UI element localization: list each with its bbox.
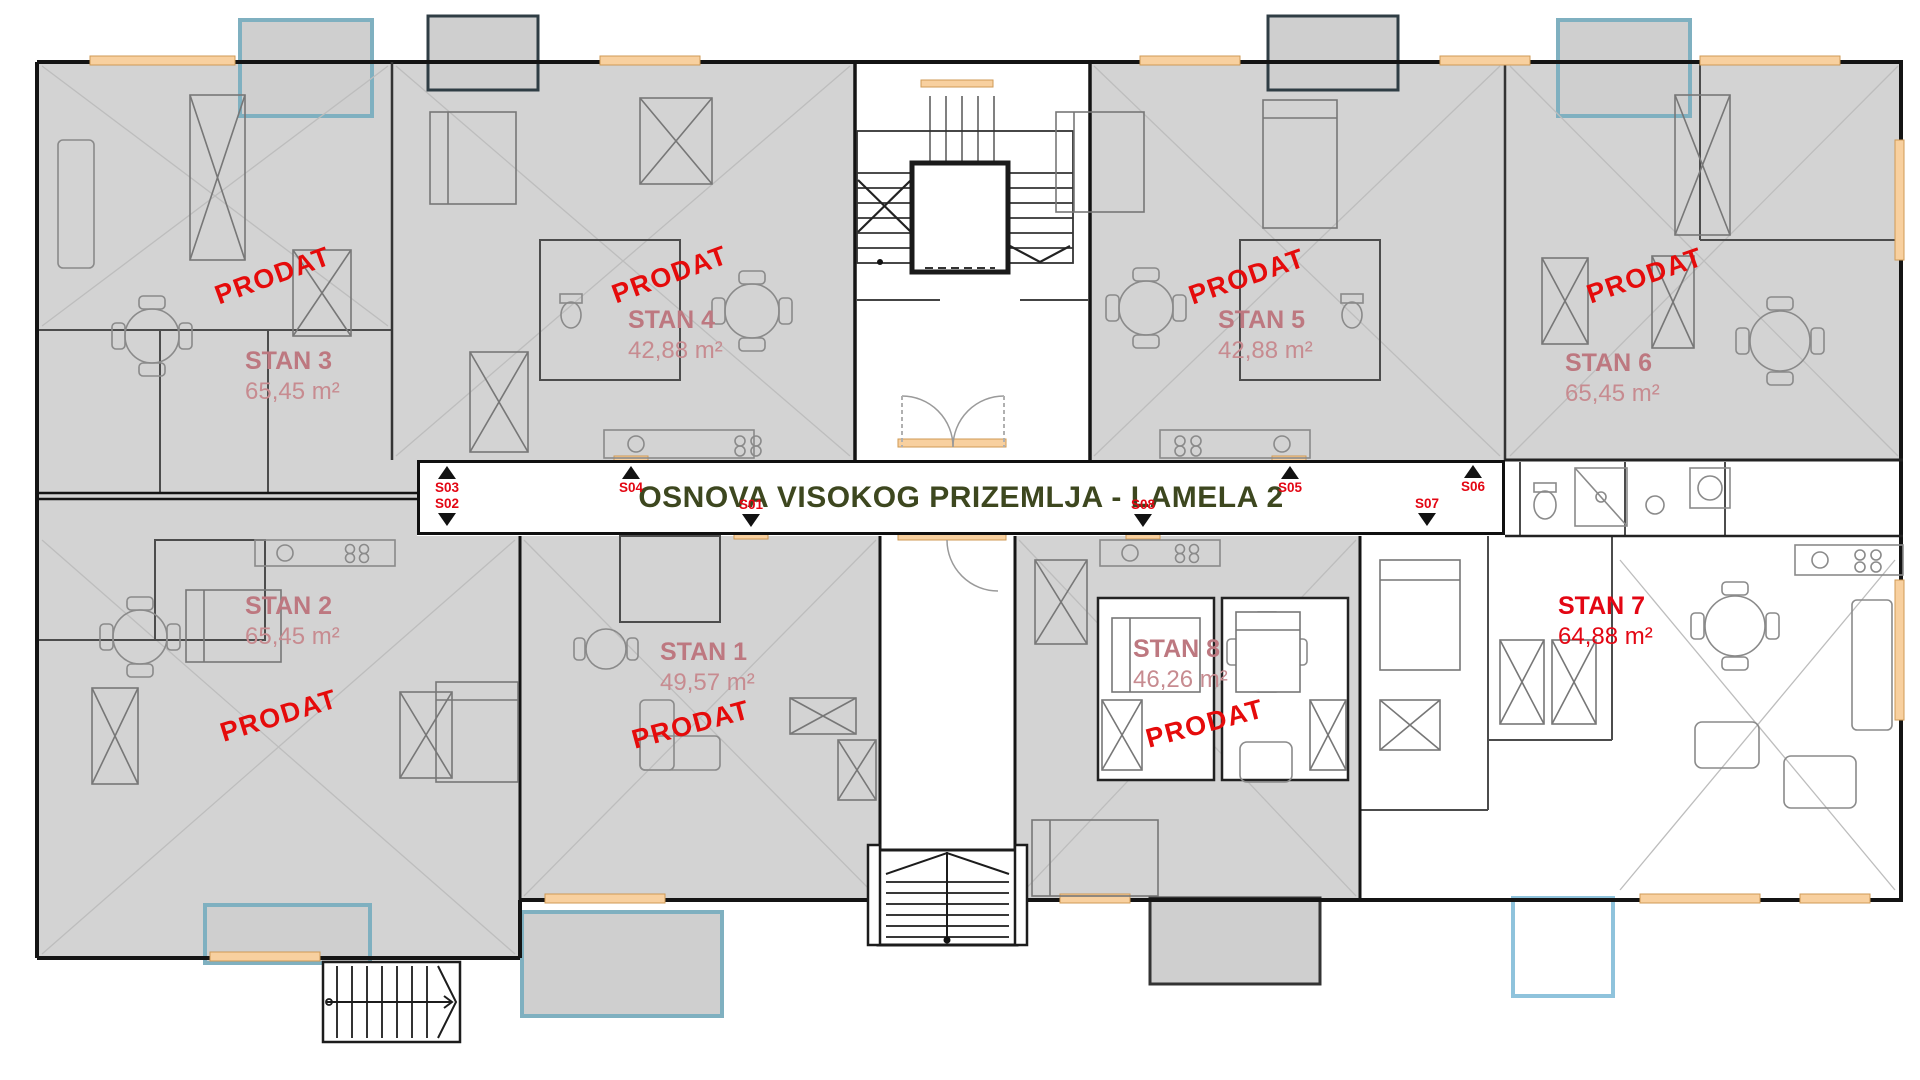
- exterior-stairs: [323, 962, 460, 1042]
- title-band: OSNOVA VISOKOG PRIZEMLJA - LAMELA 2: [417, 460, 1505, 535]
- apartment-stan-5[interactable]: STAN 5 42,88 m²: [1218, 306, 1313, 365]
- entrance-marker-s06: S06: [1461, 465, 1485, 494]
- terrace-stan6: [1558, 20, 1690, 116]
- entrance-marker-s08: S08: [1131, 498, 1155, 527]
- floor-plan: OSNOVA VISOKOG PRIZEMLJA - LAMELA 2 S03 …: [0, 0, 1920, 1080]
- arrow-up-icon: [1464, 465, 1482, 478]
- apartment-area: 65,45 m²: [245, 379, 340, 406]
- apartment-stan-8[interactable]: STAN 8 46,26 m²: [1133, 635, 1228, 694]
- apartment-stan-7[interactable]: STAN 7 64,88 m²: [1558, 592, 1653, 651]
- entrance-marker-s03: S03: [435, 466, 459, 495]
- elevator: [912, 163, 1008, 272]
- apartment-area: 49,57 m²: [660, 670, 755, 697]
- floor-plan-drawing: [0, 0, 1920, 1080]
- apartment-area: 42,88 m²: [1218, 338, 1313, 365]
- apartment-name: STAN 3: [245, 347, 340, 375]
- balcony-stan8: [1150, 898, 1320, 984]
- arrow-down-icon: [1418, 513, 1436, 526]
- terrace-stan7: [1513, 898, 1613, 996]
- apartment-name: STAN 1: [660, 638, 755, 666]
- apartment-stan-4[interactable]: STAN 4 42,88 m²: [628, 306, 723, 365]
- entrance-stairs: [868, 845, 1027, 945]
- apartment-area: 42,88 m²: [628, 338, 723, 365]
- arrow-up-icon: [622, 466, 640, 479]
- balcony-stan5: [1268, 16, 1398, 90]
- apartment-stan-1[interactable]: STAN 1 49,57 m²: [660, 638, 755, 697]
- plan-title: OSNOVA VISOKOG PRIZEMLJA - LAMELA 2: [638, 481, 1283, 515]
- arrow-down-icon: [742, 514, 760, 527]
- entrance-marker-s01: S01: [739, 498, 763, 527]
- arrow-down-icon: [1134, 514, 1152, 527]
- apartment-name: STAN 4: [628, 306, 723, 334]
- apartment-stan-6[interactable]: STAN 6 65,45 m²: [1565, 349, 1660, 408]
- entrance-marker-s05: S05: [1278, 466, 1302, 495]
- apartment-stan-2[interactable]: STAN 2 65,45 m²: [245, 592, 340, 651]
- entrance-marker-s04: S04: [619, 466, 643, 495]
- apartment-name: STAN 2: [245, 592, 340, 620]
- terrace-stan3: [240, 20, 372, 116]
- apartment-area: 65,45 m²: [245, 624, 340, 651]
- apartment-name: STAN 8: [1133, 635, 1228, 663]
- terrace-stan1: [522, 912, 722, 1016]
- entrance-marker-s02: S02: [435, 497, 459, 526]
- apartment-area: 65,45 m²: [1565, 381, 1660, 408]
- arrow-up-icon: [1281, 466, 1299, 479]
- apartment-stan-3[interactable]: STAN 3 65,45 m²: [245, 347, 340, 406]
- apartment-name: STAN 6: [1565, 349, 1660, 377]
- apartment-name: STAN 5: [1218, 306, 1313, 334]
- apartment-area: 46,26 m²: [1133, 667, 1228, 694]
- balcony-stan4: [428, 16, 538, 90]
- arrow-down-icon: [438, 513, 456, 526]
- entrance-marker-s07: S07: [1415, 497, 1439, 526]
- apartment-name: STAN 7: [1558, 592, 1653, 620]
- arrow-up-icon: [438, 466, 456, 479]
- apartment-area: 64,88 m²: [1558, 624, 1653, 651]
